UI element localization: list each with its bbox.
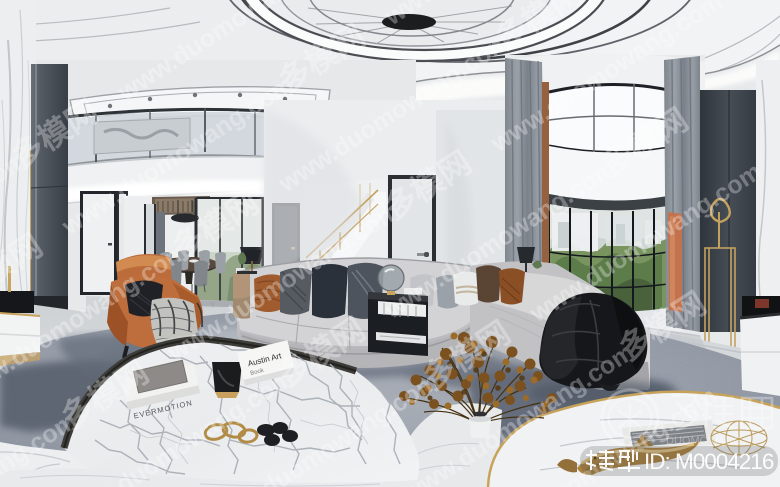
svg-text:DUOMOWANG: DUOMOWANG: [666, 435, 742, 447]
svg-text:ID: M0004216: ID: M0004216: [644, 449, 774, 474]
